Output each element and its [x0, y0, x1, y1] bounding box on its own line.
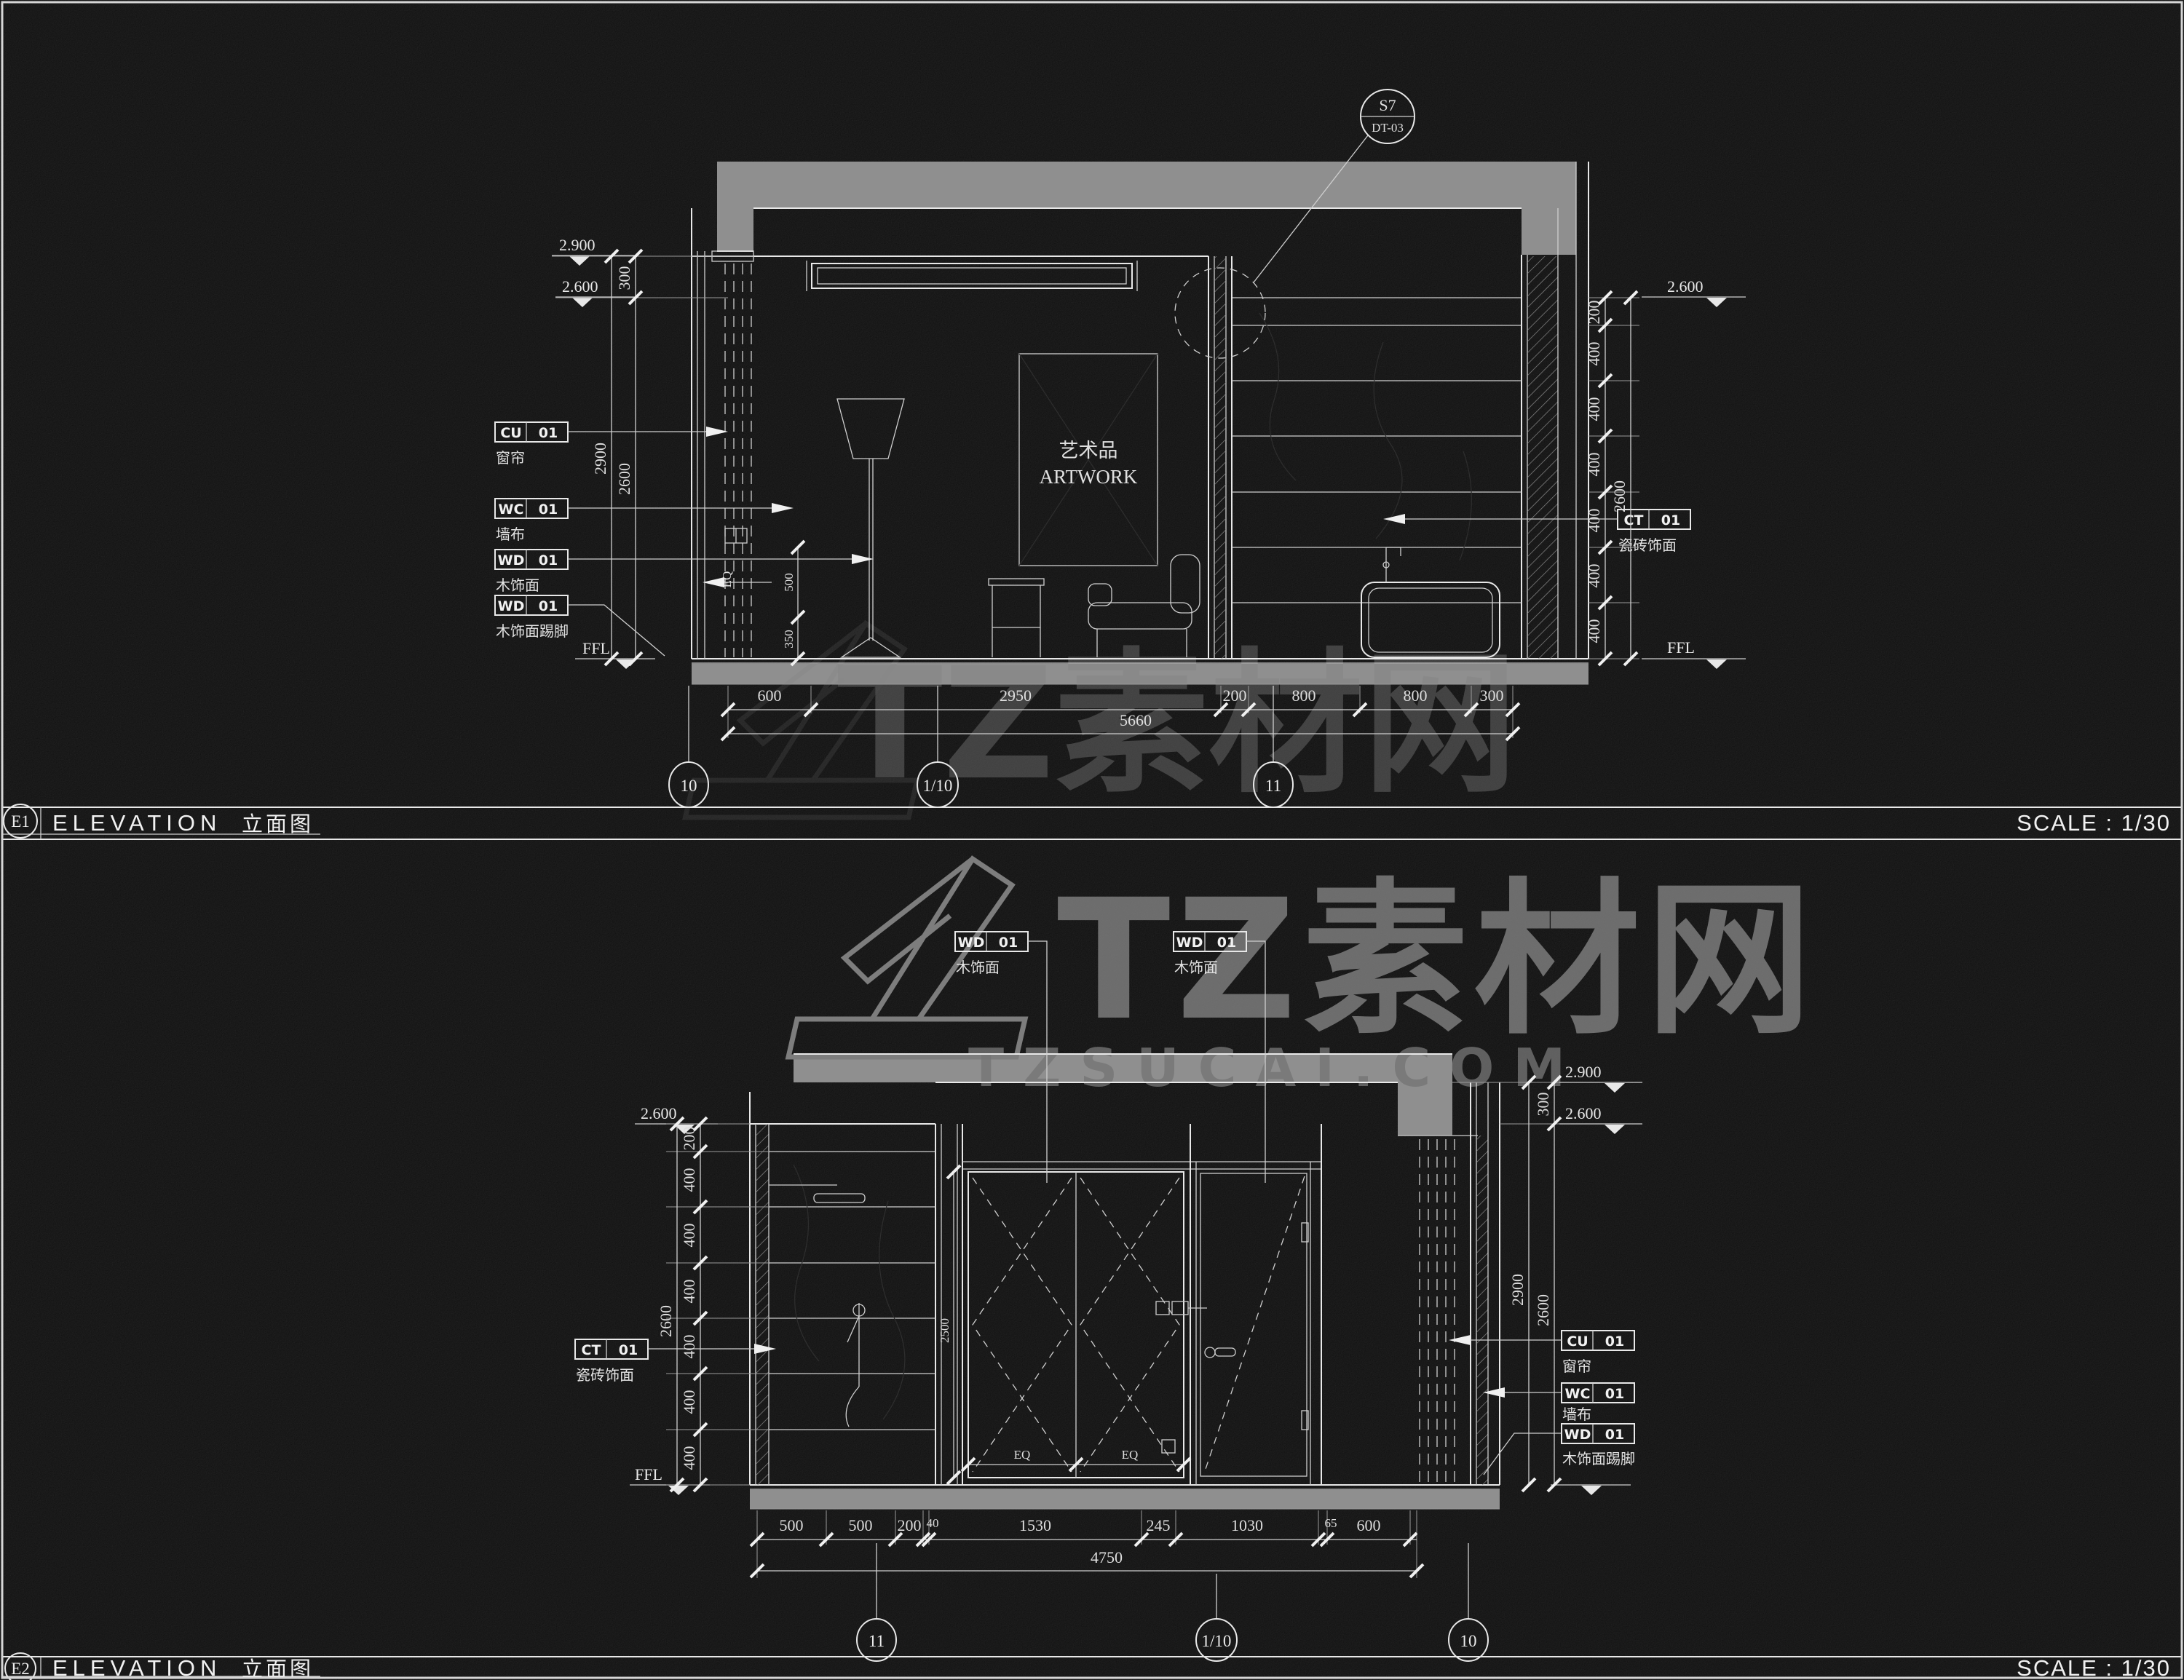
level-2600-right: 2.600 — [1667, 277, 1704, 296]
dim-text: 400 — [1585, 619, 1603, 643]
dim-text: 2500 — [938, 1318, 951, 1343]
material-code: WD — [1176, 935, 1203, 951]
panel-code: E2 — [11, 1660, 30, 1678]
dim-text: 1530 — [1019, 1516, 1051, 1534]
level-2900: 2.900 — [559, 236, 596, 254]
material-no: 01 — [539, 502, 558, 518]
dim-text: 500 — [782, 573, 796, 592]
dim-text: 2600 — [1610, 480, 1629, 512]
material-no: 01 — [619, 1342, 638, 1358]
dim-text: 400 — [1585, 564, 1603, 588]
panel-title: ELEVATION — [52, 1655, 221, 1680]
callout-sheet: DT-03 — [1372, 121, 1404, 135]
dim-text: EQ — [1122, 1448, 1139, 1462]
material-code: CU — [500, 425, 521, 441]
grid-bubble-label: 1/10 — [1202, 1632, 1232, 1650]
dim-text: 245 — [1147, 1516, 1171, 1534]
level-2600-left: 2.600 — [641, 1104, 677, 1122]
dim-text: 200 — [680, 1127, 698, 1151]
panel-code: E1 — [11, 812, 30, 831]
dim-text: 800 — [1404, 686, 1428, 705]
level-ffl-right: FFL — [1667, 638, 1695, 657]
dim-text: 2900 — [591, 443, 609, 475]
material-code: WD — [1564, 1427, 1591, 1443]
dim-text: 400 — [680, 1390, 698, 1414]
dim-text: 400 — [680, 1446, 698, 1470]
panel-subtitle-cn: 立面图 — [242, 812, 314, 836]
material-code: WD — [958, 935, 985, 951]
dim-text: 65 — [1325, 1516, 1337, 1530]
level-2600-right: 2.600 — [1565, 1104, 1602, 1122]
dim-text: 400 — [1585, 342, 1603, 366]
material-desc: 木饰面踢脚 — [496, 622, 569, 640]
material-desc: 木饰面 — [1174, 959, 1218, 976]
material-desc: 墙布 — [496, 526, 525, 543]
material-code: WD — [498, 598, 525, 614]
material-desc: 瓷砖饰面 — [576, 1366, 634, 1384]
elevation-drawing-sheet: TZ素材网 — [0, 0, 2184, 1680]
material-no: 01 — [999, 935, 1018, 951]
dim-text: 400 — [1585, 453, 1603, 477]
material-desc: 窗帘 — [496, 449, 525, 467]
panel-title: ELEVATION — [52, 810, 221, 836]
dim-text: 200 — [1585, 301, 1603, 325]
dim-text: 300 — [615, 266, 633, 290]
artwork-label-en: ARTWORK — [1040, 466, 1138, 488]
material-desc: 木饰面 — [956, 959, 1000, 976]
dim-text: 4750 — [1091, 1548, 1123, 1566]
panel-subtitle-cn: 立面图 — [242, 1657, 314, 1680]
panel-scale: SCALE : 1/30 — [2017, 1655, 2171, 1680]
dim-text: 400 — [680, 1224, 698, 1248]
material-desc: 瓷砖饰面 — [1618, 536, 1677, 554]
material-no: 01 — [1605, 1427, 1624, 1443]
dim-text: 800 — [1292, 686, 1316, 705]
dim-text: 500 — [780, 1516, 804, 1534]
dim-text: 400 — [1585, 397, 1603, 421]
level-ffl-left: FFL — [635, 1465, 662, 1483]
dim-text: 200 — [898, 1516, 922, 1534]
dim-text: 300 — [1480, 686, 1504, 705]
material-no: 01 — [539, 598, 558, 614]
grid-bubble-label: 11 — [1265, 777, 1281, 795]
grid-bubble-label: 10 — [1460, 1632, 1477, 1650]
dim-text: 600 — [758, 686, 782, 705]
grid-bubble-label: 1/10 — [923, 777, 953, 795]
material-code: CU — [1567, 1334, 1588, 1350]
dim-text: 2600 — [1534, 1294, 1552, 1326]
callout-ref: S7 — [1379, 96, 1396, 114]
dim-text: 400 — [680, 1280, 698, 1304]
material-no: 01 — [1605, 1334, 1624, 1350]
grid-bubble-label: 11 — [869, 1632, 885, 1650]
grid-bubble-label: 10 — [681, 777, 697, 795]
material-code: WC — [1565, 1386, 1591, 1402]
dim-text: 400 — [680, 1168, 698, 1192]
artwork-label-cn: 艺术品 — [1059, 440, 1118, 461]
dim-text: 600 — [1357, 1516, 1381, 1534]
material-desc: 木饰面踢脚 — [1562, 1450, 1635, 1467]
material-no: 01 — [1217, 935, 1236, 951]
dim-text: 2600 — [657, 1305, 675, 1337]
level-2600: 2.600 — [562, 277, 598, 296]
dim-text: 350 — [782, 630, 796, 649]
level-2900-right: 2.900 — [1565, 1063, 1602, 1081]
material-no: 01 — [1661, 512, 1680, 528]
watermark-domain: TZSUCAI.COM — [968, 1037, 1584, 1098]
dim-text: 200 — [1223, 686, 1247, 705]
material-code: CT — [582, 1342, 601, 1358]
dim-text: EQ — [1014, 1448, 1031, 1462]
dim-text: 400 — [1585, 509, 1603, 533]
material-desc: 墙布 — [1562, 1406, 1591, 1423]
dim-text: 400 — [680, 1335, 698, 1359]
dim-text: 500 — [849, 1516, 873, 1534]
dim-text: 2900 — [1508, 1274, 1527, 1306]
dim-text: 300 — [1534, 1093, 1552, 1117]
cad-canvas: TZ素材网 — [0, 0, 2184, 1680]
panel-scale: SCALE : 1/30 — [2017, 810, 2171, 836]
material-code: WC — [499, 502, 524, 518]
dim-text: 40 — [927, 1516, 939, 1530]
dim-text: 2600 — [615, 463, 633, 495]
material-desc: 窗帘 — [1562, 1358, 1591, 1375]
material-no: 01 — [539, 425, 558, 441]
material-code: WD — [498, 552, 525, 568]
material-no: 01 — [1605, 1386, 1624, 1402]
material-desc: 木饰面 — [496, 576, 539, 594]
dim-text: 1030 — [1231, 1516, 1263, 1534]
dim-text: 5660 — [1120, 711, 1152, 729]
material-code: CT — [1624, 512, 1644, 528]
material-no: 01 — [539, 552, 558, 568]
level-ffl-left: FFL — [582, 639, 610, 657]
watermark-brand: TZ素材网 — [1057, 863, 1818, 1057]
dim-text: 2950 — [1000, 686, 1032, 705]
